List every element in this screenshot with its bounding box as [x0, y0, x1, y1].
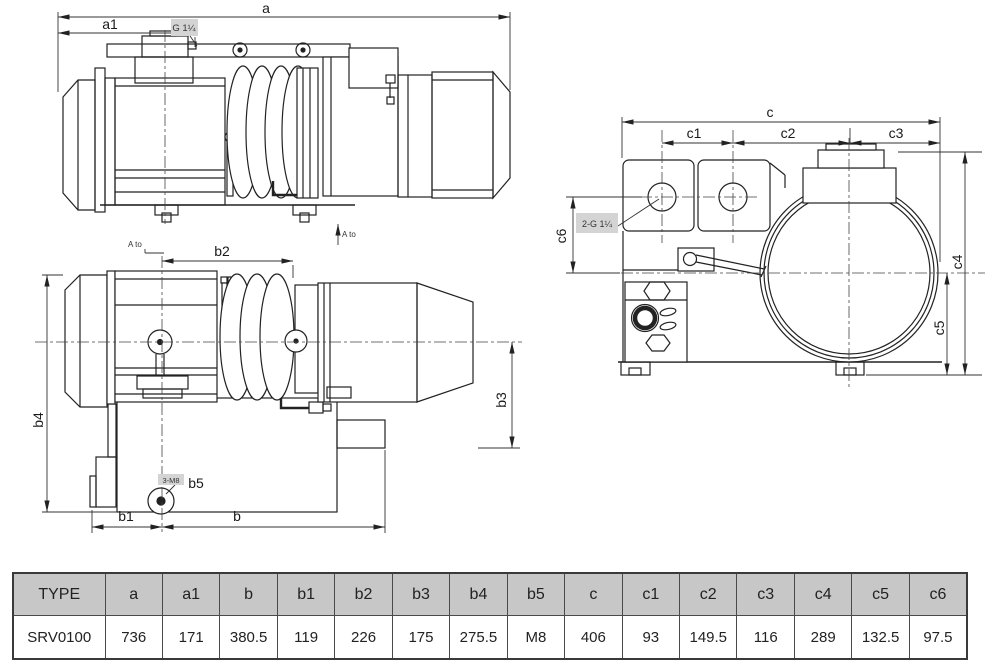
cell-c3: 116 — [737, 616, 794, 660]
cell-a1: 171 — [162, 616, 219, 660]
col-header-a1: a1 — [162, 573, 219, 616]
dim-b3-label: b3 — [493, 392, 509, 408]
view-a-title-label: A to — [128, 240, 142, 249]
view3-pump-end-outline — [600, 130, 985, 390]
dimension-table: TYPE a a1 b b1 b2 b3 b4 b5 c c1 c2 c3 c4… — [12, 572, 968, 660]
dim-b5-label: b5 — [188, 475, 204, 491]
dim-c3-label: c3 — [889, 125, 904, 141]
technical-drawing-canvas: a a1 G 1¼ A to — [0, 0, 990, 568]
col-header-b: b — [220, 573, 277, 616]
cell-c5: 132.5 — [852, 616, 909, 660]
dim-b1-label: b1 — [118, 508, 134, 524]
col-header-c1: c1 — [622, 573, 679, 616]
col-header-c4: c4 — [794, 573, 851, 616]
col-header-b5: b5 — [507, 573, 564, 616]
col-header-c3: c3 — [737, 573, 794, 616]
cell-c: 406 — [565, 616, 622, 660]
cell-b4: 275.5 — [450, 616, 507, 660]
cell-c6: 97.5 — [909, 616, 967, 660]
dim-a1-label: a1 — [102, 16, 118, 32]
cell-b1: 119 — [277, 616, 334, 660]
view1-pump-side-outline — [63, 30, 510, 224]
dimension-table-header-row: TYPE a a1 b b1 b2 b3 b4 b5 c c1 c2 c3 c4… — [13, 573, 967, 616]
view-a-arrow-label: A to — [342, 230, 356, 239]
dim-c5-label: c5 — [931, 320, 947, 335]
col-header-type: TYPE — [13, 573, 105, 616]
cell-type: SRV0100 — [13, 616, 105, 660]
dim-a-label: a — [262, 0, 270, 16]
col-header-c5: c5 — [852, 573, 909, 616]
col-header-b3: b3 — [392, 573, 449, 616]
dim-c1-label: c1 — [687, 125, 702, 141]
pump-dimension-drawing-page: a a1 G 1¼ A to — [0, 0, 990, 662]
col-header-b1: b1 — [277, 573, 334, 616]
view2-pump-a-view-outline — [35, 256, 522, 532]
col-header-b4: b4 — [450, 573, 507, 616]
dim-c2-label: c2 — [781, 125, 796, 141]
g-port-label: G 1¼ — [172, 23, 196, 34]
dim-c6-label: c6 — [553, 228, 569, 243]
col-header-b2: b2 — [335, 573, 392, 616]
col-header-c: c — [565, 573, 622, 616]
col-header-c6: c6 — [909, 573, 967, 616]
dim-b-label: b — [233, 508, 241, 524]
col-header-a: a — [105, 573, 162, 616]
cell-b2: 226 — [335, 616, 392, 660]
dim-c4-label: c4 — [949, 254, 965, 269]
dim-b4-label: b4 — [30, 412, 46, 428]
cell-b5: M8 — [507, 616, 564, 660]
cell-b: 380.5 — [220, 616, 277, 660]
g-ports-label: 2-G 1¼ — [582, 219, 613, 229]
cell-c1: 93 — [622, 616, 679, 660]
col-header-c2: c2 — [680, 573, 737, 616]
cell-c2: 149.5 — [680, 616, 737, 660]
cell-b3: 175 — [392, 616, 449, 660]
cell-c4: 289 — [794, 616, 851, 660]
dim-b2-label: b2 — [214, 243, 230, 259]
dim-c-label: c — [767, 104, 774, 120]
dimension-table-data-row: SRV0100 736 171 380.5 119 226 175 275.5 … — [13, 616, 967, 660]
cell-a: 736 — [105, 616, 162, 660]
hole-thread-label: 3-M8 — [162, 476, 179, 485]
